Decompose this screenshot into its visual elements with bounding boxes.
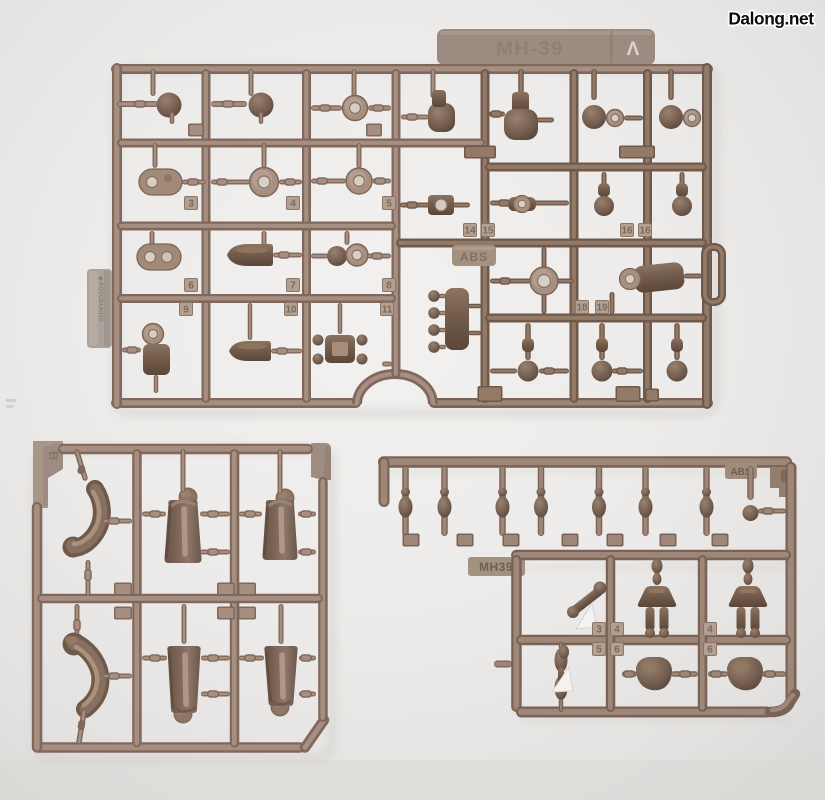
svg-text:3: 3 [188, 199, 194, 210]
svg-text:Λ: Λ [627, 39, 640, 60]
svg-text:16: 16 [621, 226, 633, 237]
svg-text:◆ KOTOBUKIYA: ◆ KOTOBUKIYA [97, 275, 104, 323]
svg-text:7: 7 [290, 281, 296, 292]
svg-text:14: 14 [464, 226, 476, 237]
svg-text:11: 11 [382, 305, 393, 316]
svg-text:ABS: ABS [460, 250, 488, 264]
svg-text:18: 18 [576, 303, 588, 314]
svg-text:MH-39: MH-39 [496, 38, 564, 60]
svg-text:6: 6 [188, 281, 194, 292]
svg-text:4: 4 [290, 199, 296, 210]
svg-text:19: 19 [596, 303, 608, 314]
svg-text:8: 8 [386, 281, 392, 292]
svg-text:10: 10 [285, 305, 297, 316]
svg-text:3: 3 [596, 625, 602, 636]
svg-text:MH39: MH39 [479, 560, 513, 574]
svg-text:5: 5 [596, 645, 602, 656]
svg-text:5: 5 [386, 199, 392, 210]
svg-text:9: 9 [183, 305, 189, 316]
svg-text:4: 4 [707, 625, 713, 636]
svg-text:15: 15 [482, 226, 494, 237]
svg-text:6: 6 [707, 645, 713, 656]
svg-text:6: 6 [614, 645, 620, 656]
svg-text:Dalong.net: Dalong.net [728, 9, 814, 29]
svg-text:16: 16 [639, 226, 651, 237]
svg-text:B: B [46, 451, 61, 460]
svg-text:4: 4 [614, 625, 620, 636]
